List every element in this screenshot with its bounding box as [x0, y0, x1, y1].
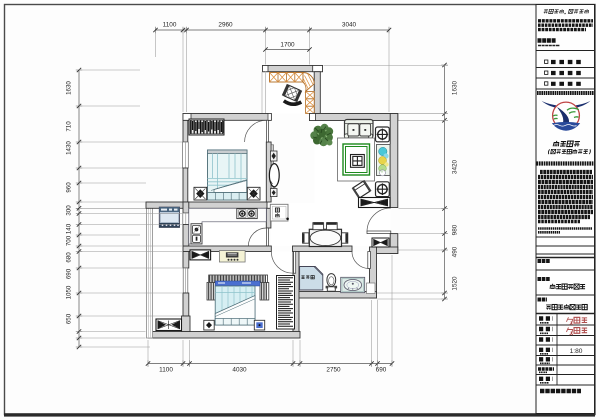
svg-text:140: 140 — [66, 223, 73, 234]
svg-text:1430: 1430 — [66, 141, 73, 155]
svg-text:1700: 1700 — [280, 41, 295, 48]
svg-text:3040: 3040 — [342, 22, 357, 29]
svg-text:690: 690 — [376, 367, 387, 374]
svg-text:650: 650 — [66, 313, 73, 324]
svg-text:960: 960 — [66, 182, 73, 193]
svg-text:1100: 1100 — [159, 367, 173, 374]
svg-text:1:80: 1:80 — [570, 348, 583, 355]
svg-text:4030: 4030 — [232, 367, 247, 374]
svg-text:700: 700 — [66, 235, 73, 246]
svg-text:2750: 2750 — [326, 367, 341, 374]
svg-text:3420: 3420 — [452, 159, 459, 174]
svg-text:1630: 1630 — [66, 81, 73, 95]
svg-text:1050: 1050 — [66, 285, 73, 299]
svg-text:300: 300 — [66, 205, 73, 216]
svg-text:2960: 2960 — [218, 22, 233, 29]
svg-text:1630: 1630 — [452, 80, 459, 95]
svg-text:710: 710 — [66, 121, 73, 132]
svg-text:690: 690 — [66, 268, 73, 279]
svg-text:1100: 1100 — [163, 22, 177, 29]
svg-text:680: 680 — [66, 252, 73, 263]
svg-text:980: 980 — [452, 224, 459, 235]
svg-text:490: 490 — [452, 246, 459, 257]
svg-text:1520: 1520 — [452, 276, 459, 291]
